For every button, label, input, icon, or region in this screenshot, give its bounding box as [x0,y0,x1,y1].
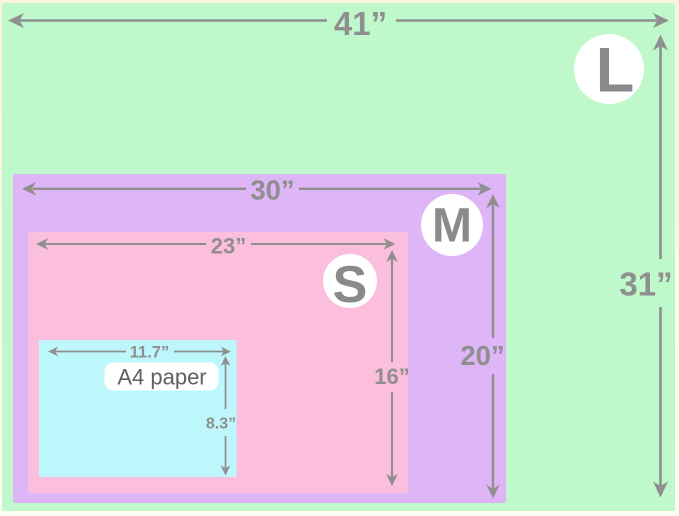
svg-text:31”: 31” [619,266,672,303]
svg-text:16”: 16” [374,364,409,389]
svg-text:11.7”: 11.7” [130,344,169,362]
svg-text:A4 paper: A4 paper [117,365,206,390]
svg-text:L: L [596,36,634,106]
svg-text:23”: 23” [211,234,246,259]
svg-text:41”: 41” [334,5,387,42]
svg-text:30”: 30” [250,175,294,206]
svg-text:20”: 20” [460,340,504,371]
svg-text:M: M [432,200,472,253]
svg-text:S: S [333,256,368,314]
svg-text:8.3”: 8.3” [206,416,236,433]
